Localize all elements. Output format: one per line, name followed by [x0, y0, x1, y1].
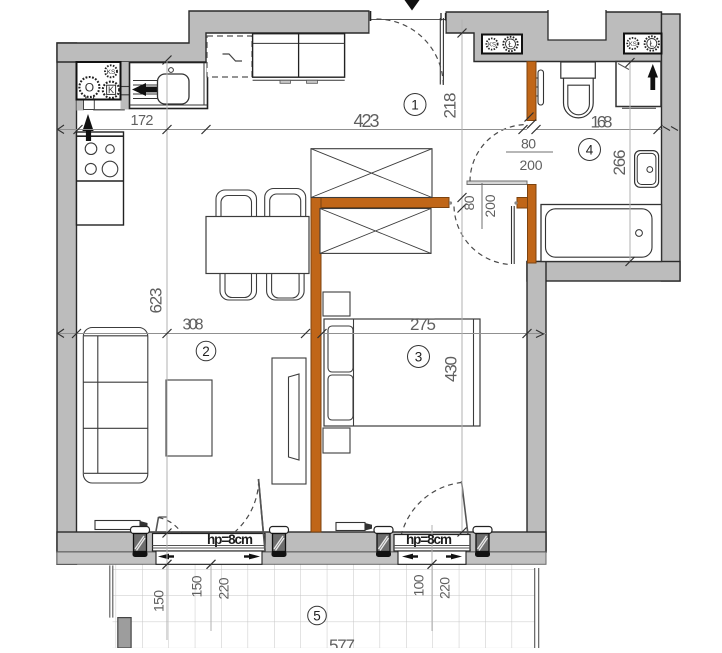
svg-text:2: 2 [202, 344, 210, 359]
svg-text:150: 150 [189, 575, 205, 597]
svg-text:266: 266 [610, 150, 629, 176]
svg-text:hp=8cm: hp=8cm [406, 532, 452, 547]
svg-text:577: 577 [329, 636, 355, 648]
svg-text:430: 430 [442, 356, 461, 382]
svg-text:80: 80 [461, 195, 477, 210]
svg-text:80: 80 [521, 136, 536, 152]
svg-text:K: K [108, 85, 114, 95]
svg-text:Ł: Ł [650, 40, 655, 49]
svg-text:200: 200 [520, 157, 543, 173]
svg-text:308: 308 [183, 317, 204, 334]
svg-text:hp=8cm: hp=8cm [207, 532, 253, 547]
svg-text:423: 423 [354, 111, 380, 131]
svg-text:100: 100 [411, 574, 427, 596]
svg-text:220: 220 [437, 577, 453, 599]
svg-text:168: 168 [591, 113, 613, 132]
svg-text:O: O [85, 81, 94, 95]
svg-text:218: 218 [441, 93, 460, 119]
svg-text:3: 3 [415, 349, 423, 364]
svg-text:150: 150 [151, 590, 167, 612]
svg-text:172: 172 [131, 113, 154, 129]
svg-text:1: 1 [411, 97, 419, 112]
svg-text:200: 200 [482, 194, 498, 217]
svg-text:4: 4 [586, 142, 594, 157]
svg-text:Ł: Ł [508, 40, 513, 49]
svg-text:5: 5 [313, 608, 321, 623]
svg-text:220: 220 [216, 577, 232, 599]
svg-text:KS: KS [629, 42, 637, 48]
svg-text:275: 275 [410, 315, 436, 334]
svg-text:623: 623 [147, 288, 166, 314]
svg-text:KS: KS [488, 42, 496, 48]
svg-text:KS: KS [107, 69, 116, 76]
